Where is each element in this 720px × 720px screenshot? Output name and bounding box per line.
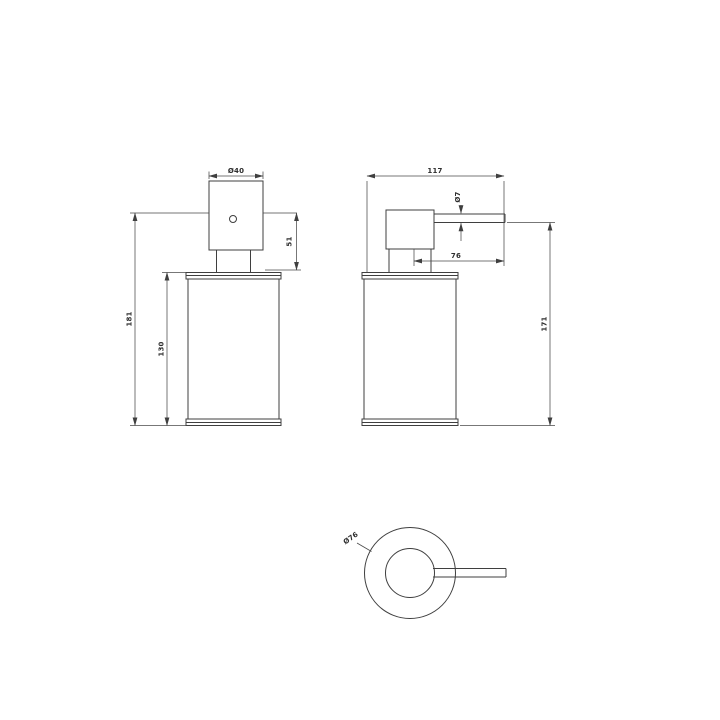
side-spout — [434, 214, 505, 223]
technical-drawing-canvas: Ø40 51 181 130 — [0, 0, 720, 720]
side-dim-label-spout-diameter: Ø7 — [454, 191, 462, 202]
front-neck — [217, 250, 251, 273]
front-pump-cap — [209, 181, 263, 250]
front-view: Ø40 51 181 130 — [126, 167, 302, 426]
top-outer-circle — [365, 528, 456, 619]
top-dim-label-base-diameter: Ø76 — [342, 530, 360, 546]
top-inner-circle — [386, 549, 435, 598]
drawing-svg: Ø40 51 181 130 — [0, 0, 720, 720]
front-dim-label-body-height: 130 — [158, 341, 166, 356]
front-dim-label-total-height: 181 — [126, 311, 134, 326]
top-leader-line — [357, 543, 372, 552]
front-spout-circle — [230, 216, 237, 223]
side-dim-label-spout-projection: 76 — [451, 252, 461, 260]
top-view: Ø76 — [342, 528, 506, 619]
top-spout — [433, 569, 506, 578]
side-body — [364, 279, 456, 419]
front-dim-label-pump-diameter: Ø40 — [228, 167, 244, 175]
front-body — [188, 279, 279, 419]
side-pump-cap — [386, 210, 434, 249]
side-view: 117 Ø7 76 171 — [362, 167, 555, 426]
side-dim-label-spout-height: 171 — [541, 316, 549, 331]
side-dim-label-overall-depth: 117 — [427, 167, 442, 175]
front-dim-label-pump-height: 51 — [286, 236, 294, 246]
